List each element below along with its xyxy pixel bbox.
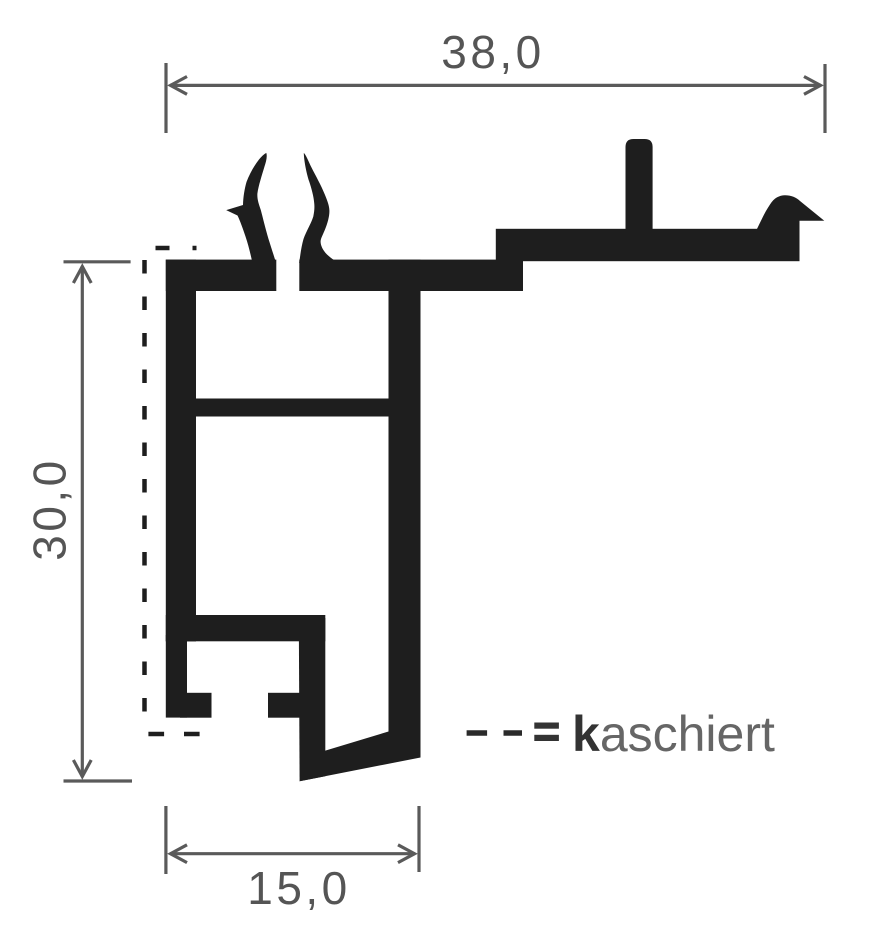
svg-text:38,0: 38,0 xyxy=(441,26,545,78)
svg-text:15,0: 15,0 xyxy=(247,862,351,914)
svg-text:kaschiert: kaschiert xyxy=(572,706,775,762)
svg-text:30,0: 30,0 xyxy=(24,457,76,561)
